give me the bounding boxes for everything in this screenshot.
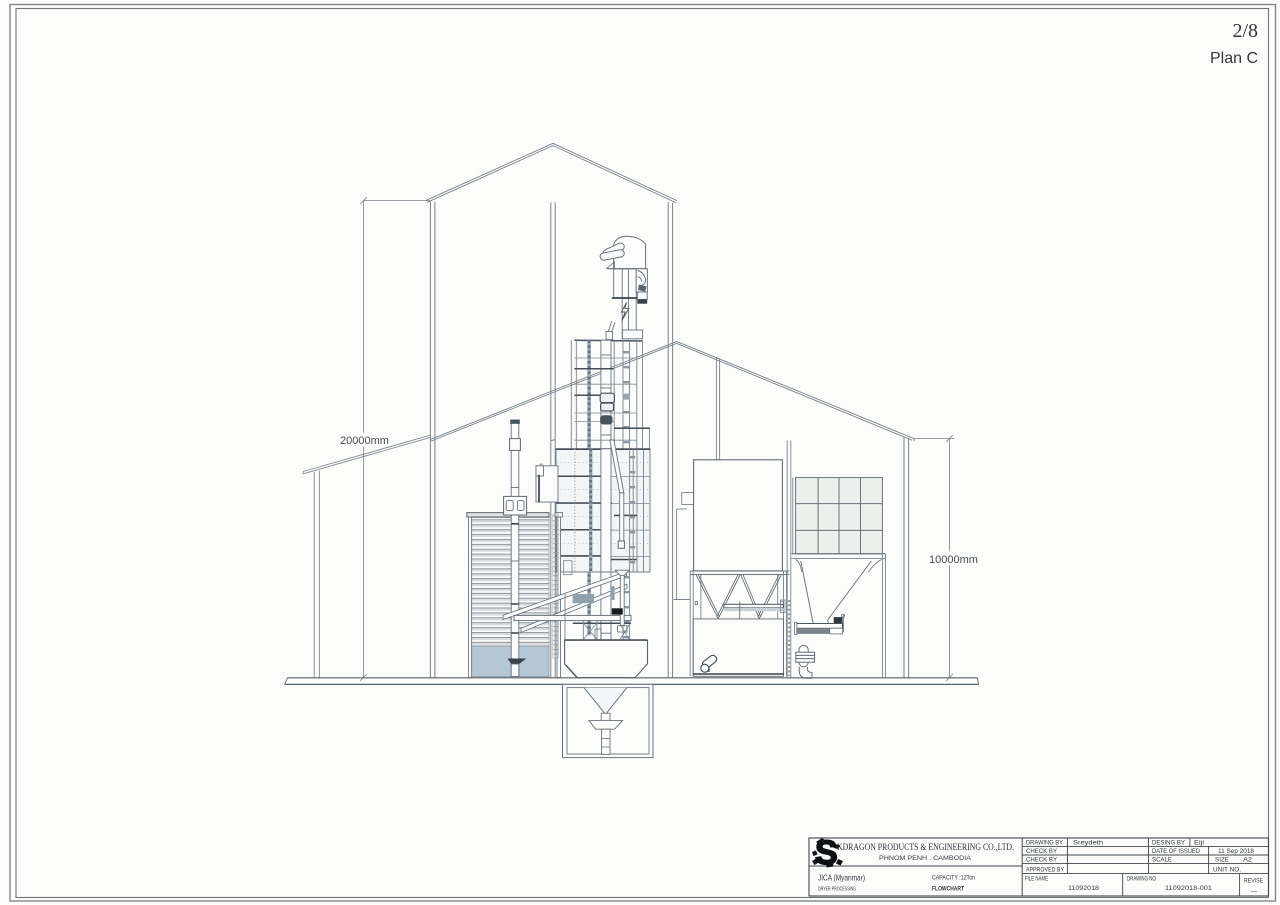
svg-text:SIZE: SIZE (1215, 857, 1230, 864)
svg-text:CAPACITY :12Ton: CAPACITY :12Ton (932, 875, 975, 882)
svg-text:DRYER PROCESSING: DRYER PROCESSING (818, 887, 856, 893)
svg-text:REVISE: REVISE (1244, 879, 1263, 885)
svg-text:UNIT NO.: UNIT NO. (1213, 867, 1241, 874)
svg-text:CHECK BY: CHECK BY (1026, 857, 1058, 864)
svg-text:DESING BY: DESING BY (1152, 839, 1186, 846)
svg-text:PHNOM PENH . CAMBODIA: PHNOM PENH . CAMBODIA (879, 855, 972, 862)
svg-text:DRAWING BY: DRAWING BY (1026, 839, 1064, 846)
svg-text:20000mm: 20000mm (340, 435, 389, 447)
svg-text:DATE OF ISSUED: DATE OF ISSUED (1152, 848, 1200, 855)
svg-text:FLOWCHART: FLOWCHART (932, 886, 965, 893)
svg-text:FILE NAME: FILE NAME (1025, 877, 1048, 883)
svg-text:KDRAGON PRODUCTS & ENGINEERING: KDRAGON PRODUCTS & ENGINEERING CO.,LTD. (837, 843, 1014, 853)
svg-text:10000mm: 10000mm (929, 554, 978, 566)
svg-text:—: — (1251, 889, 1257, 895)
svg-text:2/8: 2/8 (1232, 20, 1258, 42)
svg-text:11092018-001: 11092018-001 (1165, 886, 1213, 892)
svg-text:APPROVED BY: APPROVED BY (1026, 867, 1064, 874)
svg-text:JICA (Myanmar): JICA (Myanmar) (818, 873, 865, 883)
svg-text:A2: A2 (1243, 857, 1252, 864)
svg-text:Eiji: Eiji (1194, 839, 1205, 846)
svg-text:11092018: 11092018 (1068, 886, 1100, 892)
svg-text:SCALE: SCALE (1152, 857, 1173, 864)
svg-text:DRAWING NO.: DRAWING NO. (1127, 877, 1157, 883)
svg-text:Plan C: Plan C (1210, 50, 1258, 67)
svg-text:Sreydeth: Sreydeth (1073, 839, 1103, 846)
svg-text:CHECK BY: CHECK BY (1026, 848, 1058, 855)
svg-text:11 Sep 2018: 11 Sep 2018 (1218, 848, 1254, 855)
